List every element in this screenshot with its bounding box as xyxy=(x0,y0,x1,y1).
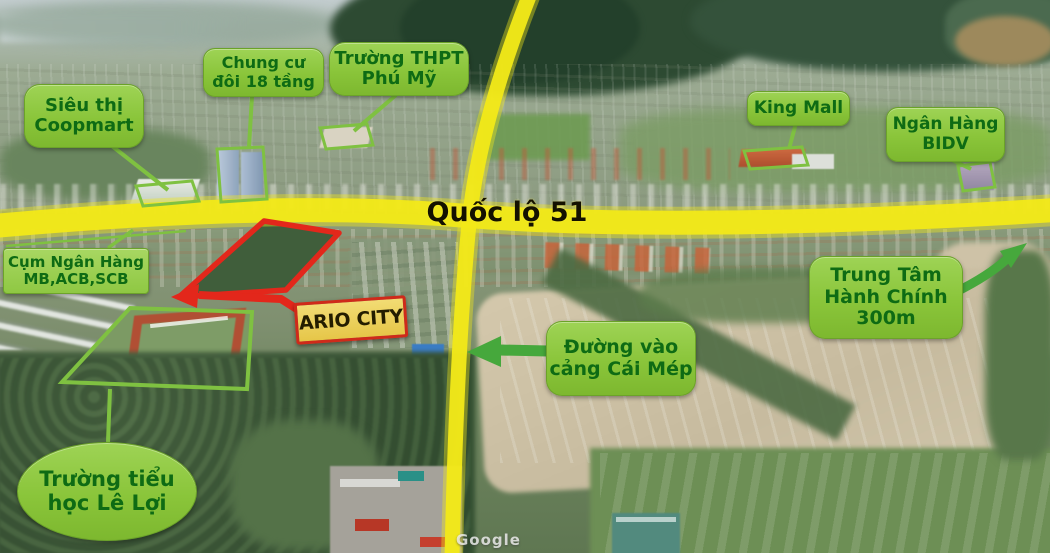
label-coopmart: Siêu thị Coopmart xyxy=(24,84,144,148)
google-watermark: Google xyxy=(456,531,521,549)
project-site-group xyxy=(171,221,339,313)
label-truong-thpt: Trường THPT Phú Mỹ xyxy=(329,42,469,96)
admin-arrow-shaft xyxy=(956,259,1007,292)
label-chung-cu: Chung cư đôi 18 tầng xyxy=(203,48,324,97)
label-king-mall: King Mall xyxy=(747,91,850,126)
king-mall-outline xyxy=(744,147,808,169)
cai-mep-arrow-head xyxy=(467,336,501,367)
label-truong-tieu-hoc-le-loi: Trường tiểu học Lê Lợi xyxy=(17,442,197,541)
label-ario-city: ARIO CITY xyxy=(294,295,409,345)
chung-cu-connector xyxy=(249,96,252,147)
label-bidv: Ngân Hàng BIDV xyxy=(886,107,1005,162)
label-cum-ngan-hang: Cụm Ngân Hàng MB,ACB,SCB xyxy=(3,248,149,294)
aerial-location-map: Siêu thị Coopmart Chung cư đôi 18 tầng T… xyxy=(0,0,1050,553)
king-mall-connector xyxy=(789,123,796,149)
cai-mep-arrow-shaft xyxy=(499,350,548,351)
le-loi-school-outline xyxy=(62,308,252,389)
chung-cu-outline xyxy=(217,147,267,202)
label-duong-vao-cai-mep: Đường vào cảng Cái Mép xyxy=(546,321,696,396)
label-trung-tam-hanh-chinh: Trung Tâm Hành Chính 300m xyxy=(809,256,963,339)
site-arrow-head xyxy=(171,284,199,308)
le-loi-connector xyxy=(108,389,110,442)
bidv-outline xyxy=(958,162,995,191)
thpt-outline xyxy=(320,124,373,149)
site-boundary xyxy=(179,221,339,297)
highway-name: Quốc lộ 51 xyxy=(417,197,597,228)
